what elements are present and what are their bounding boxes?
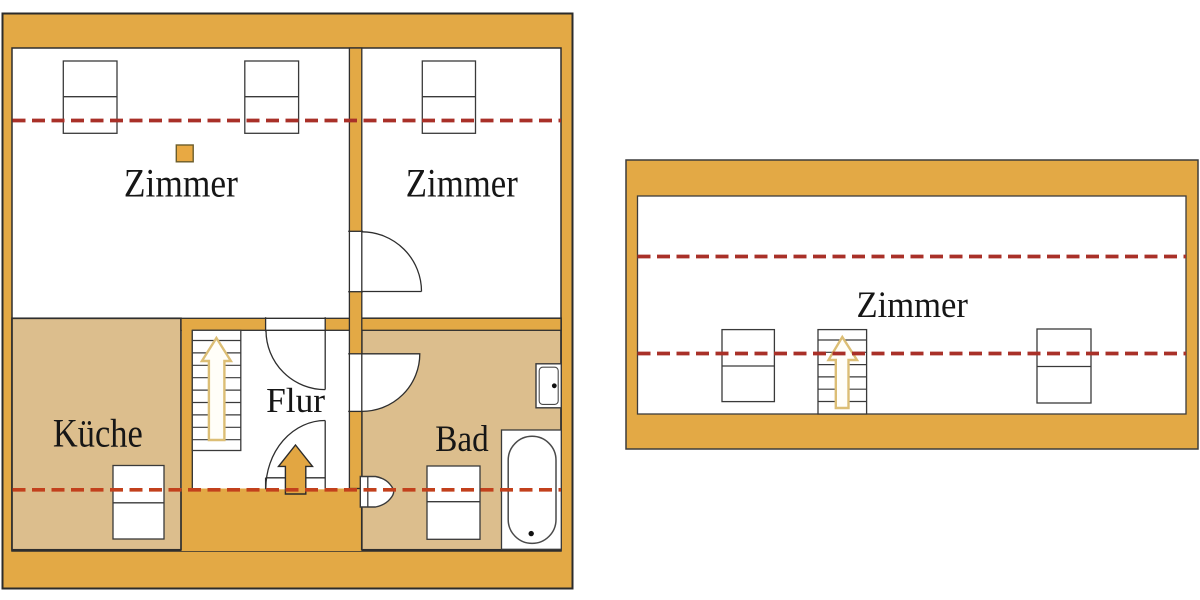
svg-text:Flur: Flur	[266, 381, 325, 420]
svg-text:Zimmer: Zimmer	[124, 161, 238, 206]
svg-text:Zimmer: Zimmer	[406, 161, 518, 206]
svg-text:Küche: Küche	[53, 411, 143, 456]
svg-text:Bad: Bad	[435, 419, 489, 460]
svg-text:Zimmer: Zimmer	[856, 285, 968, 326]
